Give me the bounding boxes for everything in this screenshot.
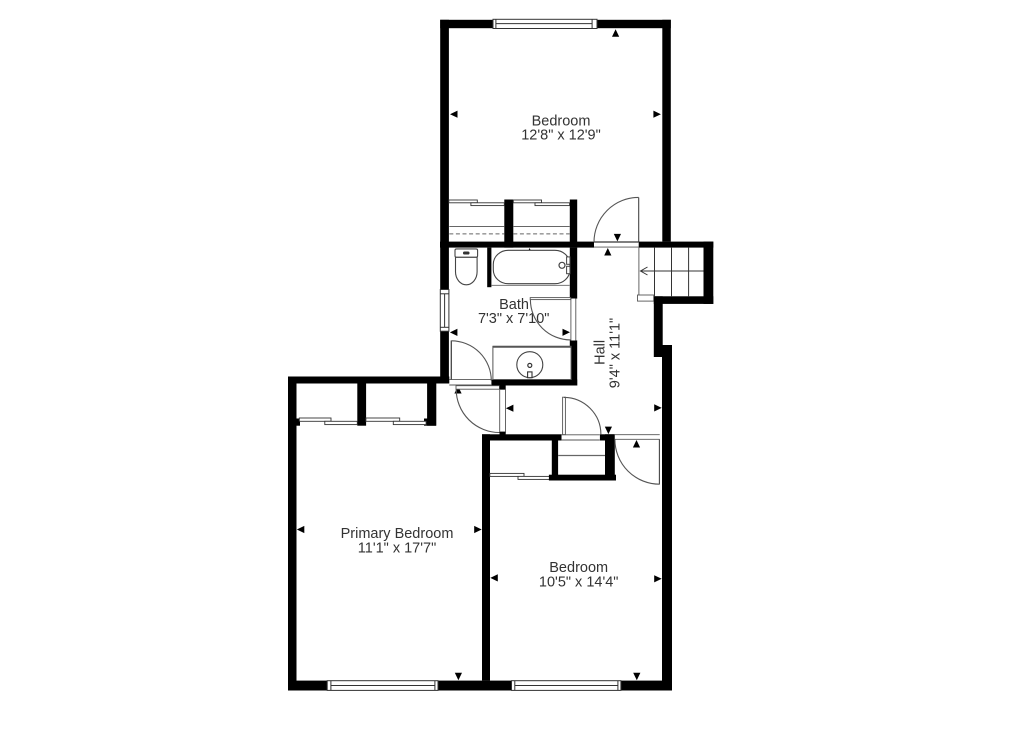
svg-text:Hall: Hall (592, 340, 608, 365)
svg-text:Bedroom: Bedroom (549, 560, 608, 576)
svg-text:11'1" x 17'7": 11'1" x 17'7" (358, 540, 436, 556)
svg-text:9'4" x 11'1": 9'4" x 11'1" (607, 318, 623, 388)
svg-text:12'8" x 12'9": 12'8" x 12'9" (521, 128, 601, 144)
svg-text:10'5" x 14'4": 10'5" x 14'4" (539, 575, 619, 591)
